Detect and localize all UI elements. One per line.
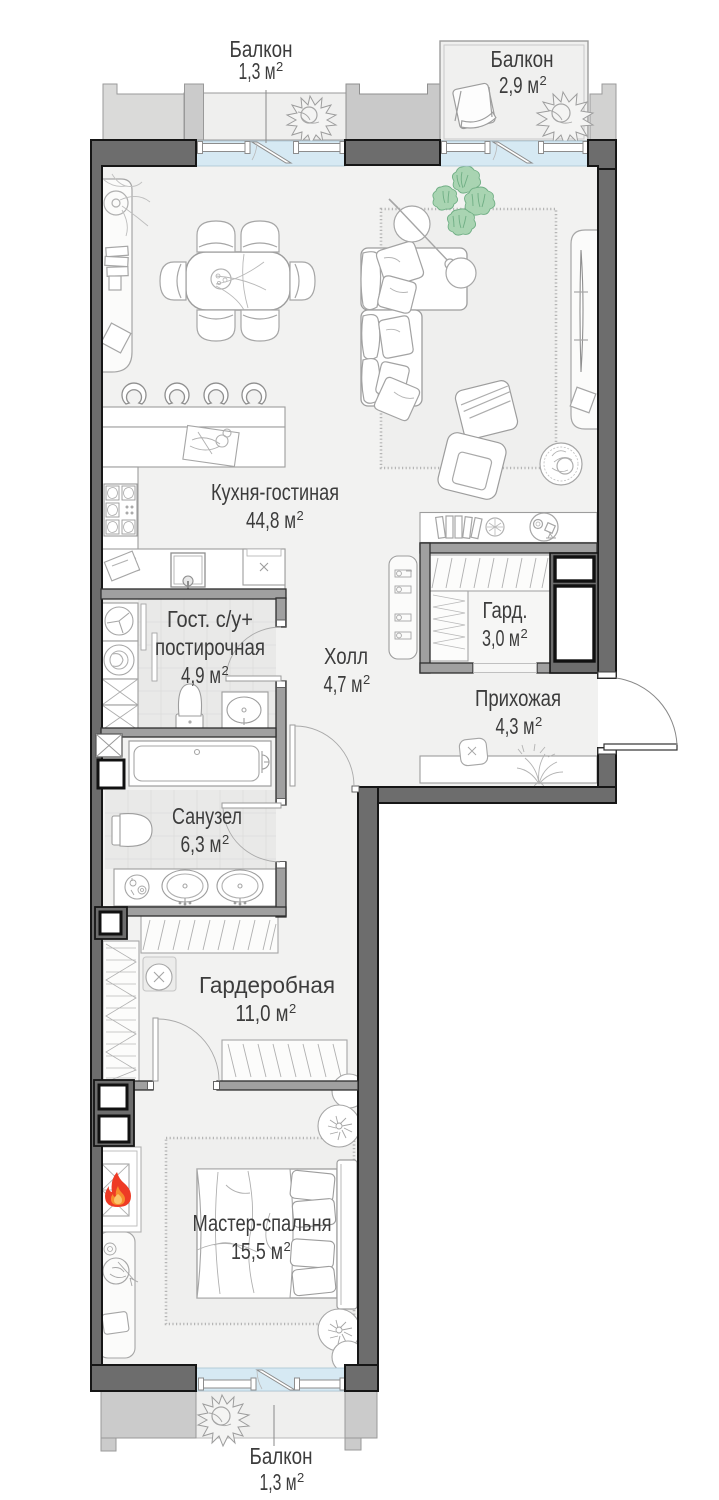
- svg-text:6,3 м: 6,3 м: [181, 831, 222, 857]
- svg-text:2: 2: [222, 832, 229, 847]
- svg-text:Гост. с/у+: Гост. с/у+: [167, 606, 253, 632]
- svg-text:постирочная: постирочная: [155, 634, 265, 660]
- svg-text:Гард.: Гард.: [483, 597, 528, 623]
- svg-text:11,0 м: 11,0 м: [236, 1000, 289, 1026]
- svg-text:2: 2: [521, 626, 528, 641]
- svg-text:2: 2: [289, 1001, 296, 1016]
- svg-text:2,9 м: 2,9 м: [499, 72, 539, 98]
- svg-text:2: 2: [363, 672, 370, 687]
- svg-text:2: 2: [535, 714, 542, 729]
- svg-text:2: 2: [222, 663, 229, 678]
- svg-text:Гардеробная: Гардеробная: [199, 972, 335, 998]
- svg-text:15,5 м: 15,5 м: [231, 1238, 283, 1264]
- svg-text:1,3 м: 1,3 м: [239, 58, 276, 84]
- svg-text:Прихожая: Прихожая: [475, 685, 561, 711]
- svg-text:4,7 м: 4,7 м: [324, 671, 363, 697]
- svg-text:Мастер-спальня: Мастер-спальня: [193, 1210, 332, 1236]
- svg-text:Холл: Холл: [324, 643, 368, 669]
- svg-text:2: 2: [276, 59, 283, 74]
- svg-text:2: 2: [297, 508, 304, 523]
- svg-text:4,9 м: 4,9 м: [181, 662, 221, 688]
- svg-text:1,3 м: 1,3 м: [260, 1469, 297, 1495]
- svg-text:2: 2: [297, 1470, 304, 1485]
- svg-text:Балкон: Балкон: [250, 1443, 313, 1469]
- svg-text:44,8 м: 44,8 м: [246, 507, 296, 533]
- svg-text:2: 2: [284, 1239, 291, 1254]
- svg-text:Балкон: Балкон: [491, 46, 554, 72]
- svg-text:Кухня-гостиная: Кухня-гостиная: [211, 479, 339, 505]
- svg-text:3,0 м: 3,0 м: [482, 625, 520, 651]
- svg-text:Санузел: Санузел: [172, 803, 242, 829]
- svg-text:2: 2: [540, 73, 547, 88]
- svg-text:4,3 м: 4,3 м: [496, 713, 535, 739]
